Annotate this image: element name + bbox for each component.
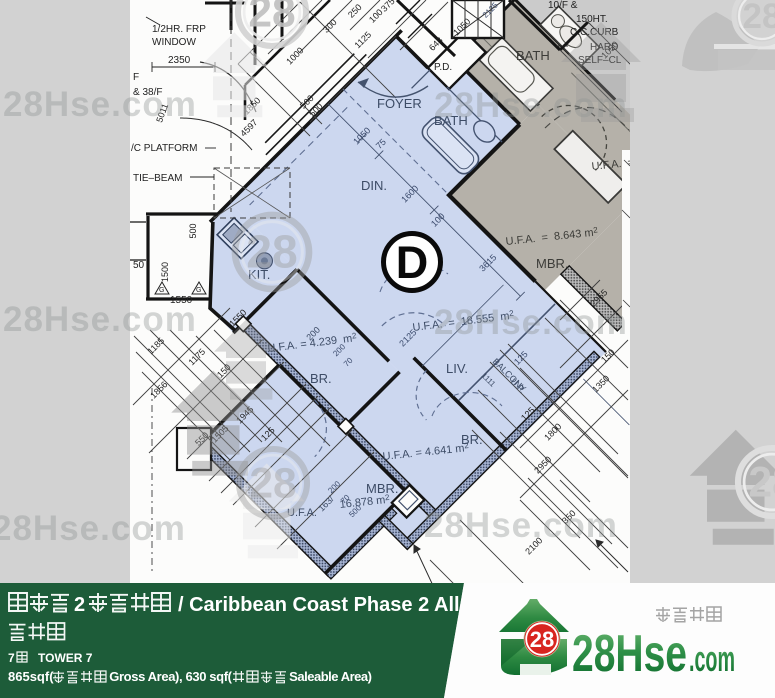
svg-text:FOYER: FOYER — [377, 96, 422, 111]
svg-text:BR.: BR. — [310, 371, 332, 386]
svg-text:TIE–BEAM: TIE–BEAM — [133, 173, 182, 184]
svg-text:BATH: BATH — [516, 48, 550, 63]
svg-text:Gross Area), 630 sqf(: Gross Area), 630 sqf( — [106, 669, 233, 684]
svg-text:865sqf(: 865sqf( — [8, 669, 54, 684]
svg-text:1500: 1500 — [160, 262, 170, 282]
svg-text:WINDOW: WINDOW — [152, 37, 196, 48]
svg-text:28: 28 — [246, 226, 297, 278]
svg-text:500: 500 — [188, 223, 198, 238]
svg-text:28Hse.com: 28Hse.com — [424, 506, 618, 545]
svg-text:P.D.: P.D. — [434, 62, 452, 73]
svg-text:G: G — [159, 287, 164, 294]
svg-text:28: 28 — [248, 0, 295, 36]
svg-text:28Hse.com: 28Hse.com — [3, 85, 197, 124]
svg-text:F: F — [133, 72, 139, 83]
svg-text:MBR.: MBR. — [536, 256, 569, 271]
svg-text:50: 50 — [133, 260, 145, 271]
svg-text:28Hse.com: 28Hse.com — [3, 300, 197, 339]
svg-text:.com: .com — [689, 638, 735, 679]
svg-text:150HT.: 150HT. — [576, 14, 608, 25]
svg-text:LIV.: LIV. — [446, 361, 468, 376]
svg-text:D: D — [396, 237, 429, 288]
svg-text:1/2HR. FRP: 1/2HR. FRP — [152, 24, 206, 35]
svg-text:TOWER 7: TOWER 7 — [38, 651, 93, 665]
svg-text:28Hse: 28Hse — [572, 625, 687, 683]
svg-text:28: 28 — [748, 459, 775, 506]
svg-text:28Hse.com: 28Hse.com — [0, 509, 186, 548]
svg-text:2350: 2350 — [168, 55, 191, 66]
svg-text:28Hse.com: 28Hse.com — [434, 303, 628, 342]
svg-text:G: G — [196, 287, 201, 294]
svg-text:10/F &: 10/F & — [548, 0, 578, 11]
svg-text:Saleable Area): Saleable Area) — [286, 669, 372, 684]
svg-text:2: 2 — [74, 594, 85, 616]
svg-text:28: 28 — [249, 460, 296, 507]
svg-text:DIN.: DIN. — [361, 178, 387, 193]
svg-text:28: 28 — [743, 0, 775, 36]
svg-text:/ Caribbean Coast Phase 2 All: / Caribbean Coast Phase 2 All — [178, 594, 460, 616]
svg-text:/C PLATFORM: /C PLATFORM — [131, 143, 197, 154]
svg-text:7: 7 — [8, 651, 15, 665]
svg-text:28: 28 — [530, 627, 554, 652]
